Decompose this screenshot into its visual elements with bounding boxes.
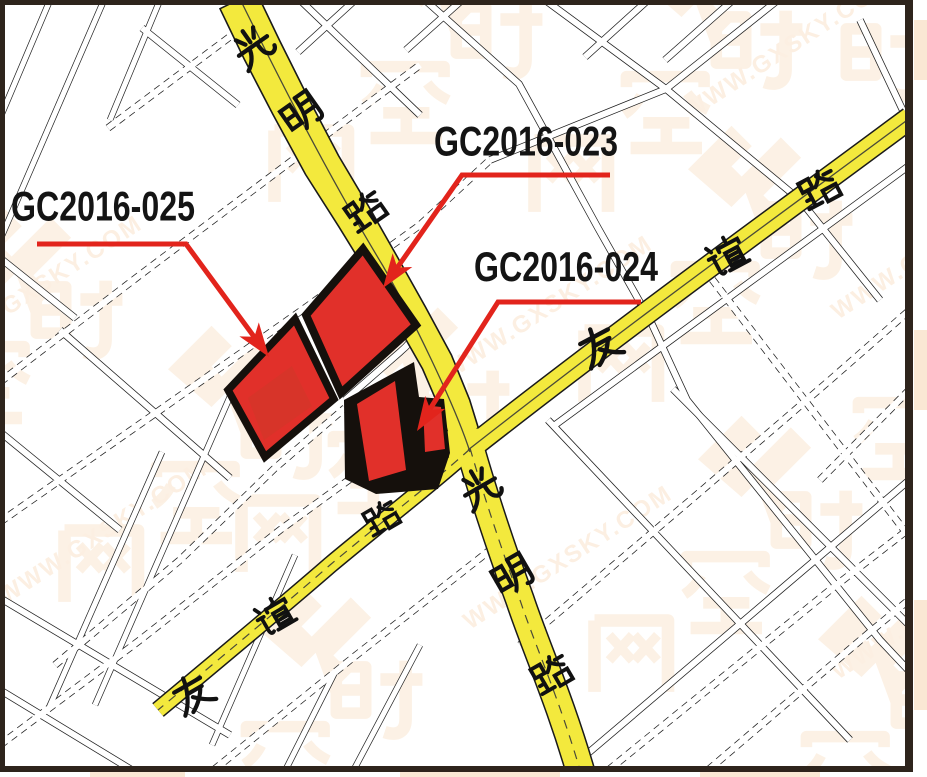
svg-text:GC2016-023: GC2016-023 <box>434 118 618 165</box>
svg-text:GC2016-025: GC2016-025 <box>11 183 195 230</box>
svg-text:GC2016-024: GC2016-024 <box>474 243 658 290</box>
